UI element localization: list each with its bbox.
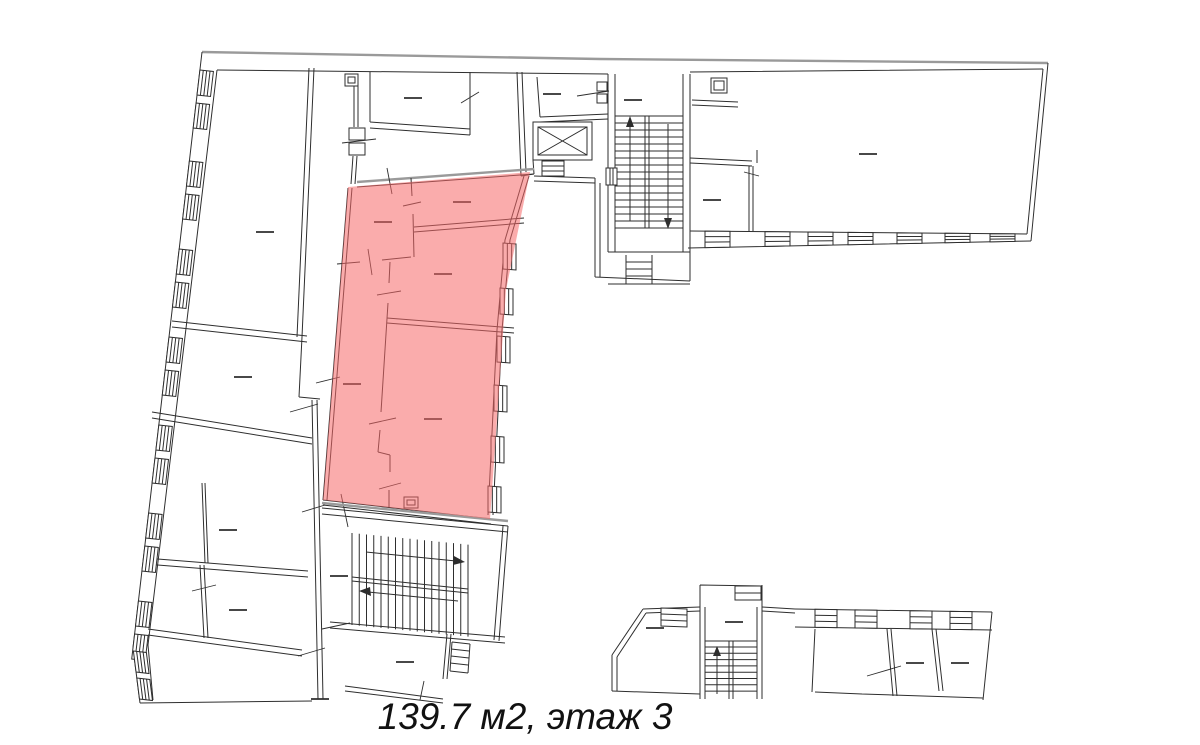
- door-tick-icon: [867, 666, 901, 676]
- floor-plan: [0, 0, 1200, 745]
- down-arrow-icon: [664, 124, 672, 229]
- bottom-right-rooms: [612, 585, 992, 700]
- up-arrow-icon: [626, 116, 634, 221]
- elevator-steps: [542, 161, 564, 176]
- up-arrow-icon: [713, 646, 721, 694]
- building-outline: [133, 52, 1048, 703]
- highlighted-unit-overlay: [323, 172, 530, 519]
- window-band: [661, 586, 972, 630]
- window-band: [705, 231, 1015, 248]
- floorplan-image: 139.7 м2, этаж 3: [0, 0, 1200, 745]
- bottom-staircase: [700, 607, 762, 699]
- stair-treads: [705, 647, 757, 691]
- door-tick-icon: [192, 585, 216, 591]
- caption: 139.7 м2, этаж 3: [0, 696, 1050, 738]
- left-wall-windows: [132, 70, 214, 701]
- door-tick-icon: [290, 404, 318, 412]
- duct-symbol: [711, 78, 727, 93]
- bottom-center-rooms: [322, 623, 470, 703]
- stair-treads: [352, 533, 468, 637]
- door-tick-icon: [744, 172, 759, 176]
- elevator-icon: [533, 122, 592, 176]
- duct-symbol: [345, 74, 358, 86]
- right-wing: [690, 78, 1015, 248]
- main-staircase: [606, 74, 690, 284]
- right-wing-right-wall: [1027, 63, 1048, 241]
- inner-top-wall: [217, 69, 1043, 74]
- thin-partition: [202, 483, 208, 563]
- outer-top-wall: [202, 52, 1048, 63]
- connector-steps: [450, 642, 470, 673]
- middle-staircase: [322, 503, 508, 643]
- corridor-wall: [312, 400, 323, 699]
